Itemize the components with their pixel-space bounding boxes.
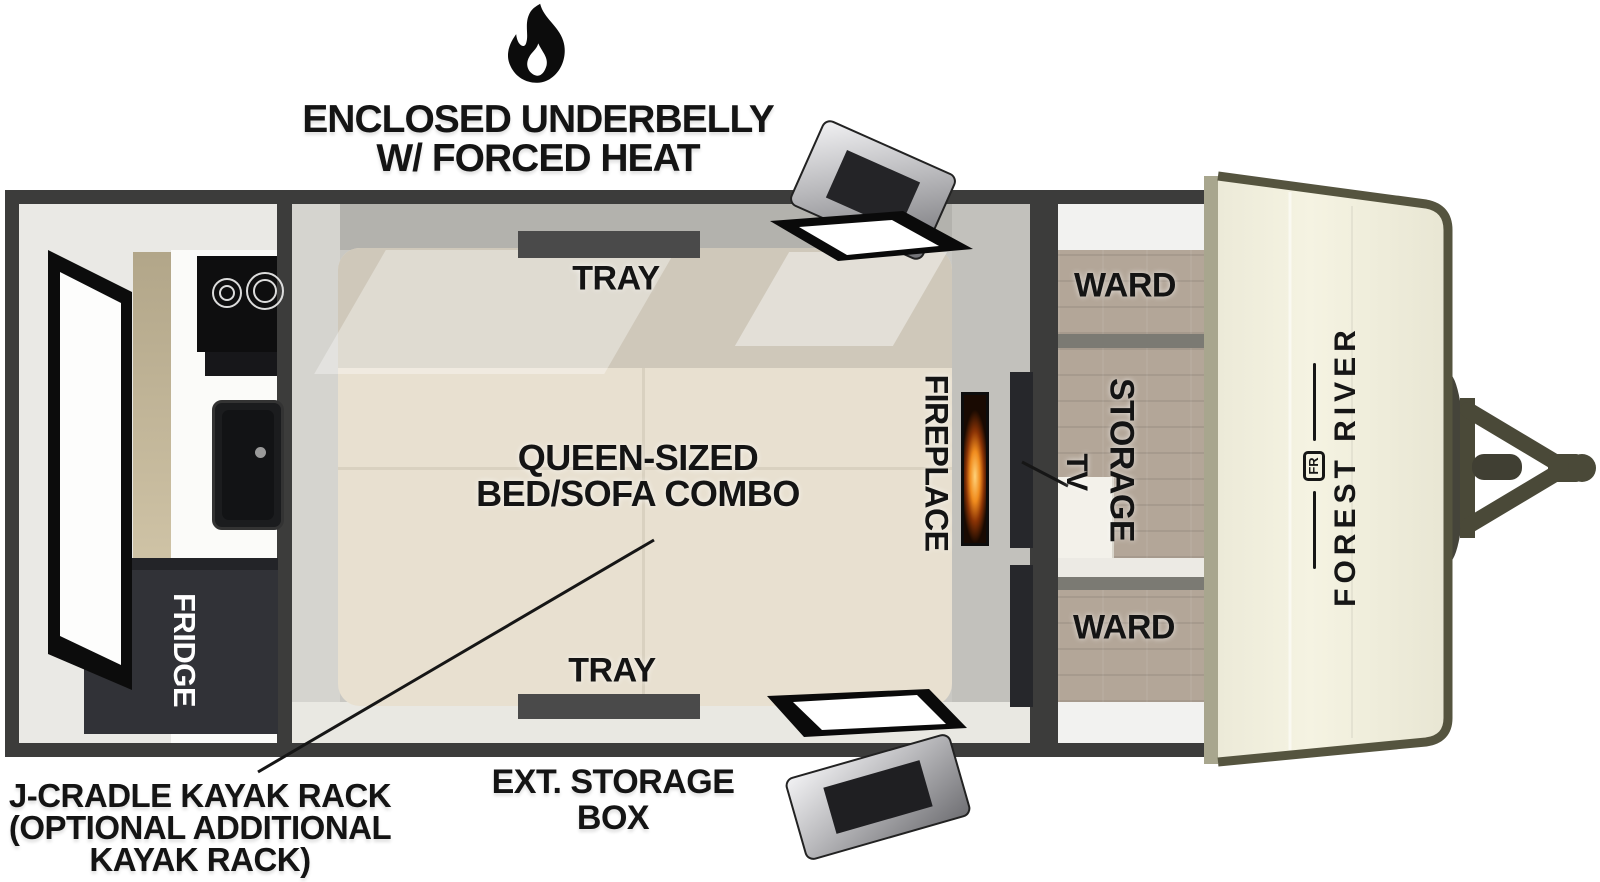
- tray-top: [518, 231, 700, 258]
- brand-block: FR FOREST RIVER: [1303, 266, 1363, 666]
- fireplace-label: FIREPLACE: [918, 375, 955, 552]
- fireplace-flame: [964, 395, 986, 543]
- tv-panel: [1010, 372, 1033, 548]
- brand-logo-row: FR: [1303, 363, 1325, 568]
- underbelly-heat-note-line1: ENCLOSED UNDERBELLY: [302, 100, 773, 139]
- bed-label-line2: BED/SOFA COMBO: [476, 473, 800, 515]
- underbelly-heat-note: ENCLOSED UNDERBELLY W/ FORCED HEAT: [302, 0, 773, 178]
- floorplan-canvas: ENCLOSED UNDERBELLY W/ FORCED HEAT: [0, 0, 1600, 882]
- storage-shelf: [1058, 558, 1208, 577]
- kitchen-counter: [133, 252, 171, 564]
- brand-divider-line: [1313, 491, 1316, 569]
- tray-top-label: TRAY: [572, 260, 659, 299]
- fridge-label: FRIDGE: [166, 593, 202, 707]
- sink-drain: [255, 447, 266, 458]
- cooktop-burner-right: [246, 272, 284, 310]
- main-room-left-wall-face: [292, 204, 340, 743]
- tray-bottom-label: TRAY: [568, 652, 655, 691]
- compartment-divider-lower: [1058, 577, 1208, 590]
- forest-river-logo-icon: FR: [1303, 451, 1325, 480]
- sink-basin: [222, 410, 274, 520]
- ext-storage-note-line2: BOX: [492, 800, 735, 836]
- ward-top-label: WARD: [1074, 267, 1176, 306]
- compartment-divider-upper: [1058, 334, 1208, 348]
- kayak-rack-note-line1: J-CRADLE KAYAK RACK: [9, 780, 391, 812]
- media-cabinet-panel: [1010, 565, 1033, 707]
- cooktop-control-panel: [205, 352, 277, 376]
- ext-storage-note: EXT. STORAGE BOX: [492, 764, 735, 836]
- cooktop-burner-left: [212, 278, 242, 308]
- ward-bottom-label: WARD: [1073, 609, 1175, 648]
- a-frame-hitch-icon: [1431, 373, 1596, 563]
- storage-label: STORAGE: [1102, 378, 1141, 542]
- kayak-rack-note: J-CRADLE KAYAK RACK (OPTIONAL ADDITIONAL…: [9, 780, 391, 876]
- underbelly-heat-note-line2: W/ FORCED HEAT: [302, 139, 773, 178]
- brand-divider-line: [1313, 363, 1316, 441]
- flame-icon: [503, 2, 573, 94]
- fridge-top-edge: [84, 558, 278, 570]
- tray-bottom: [518, 694, 700, 719]
- ext-storage-note-line1: EXT. STORAGE: [492, 764, 735, 800]
- fireplace: [961, 392, 989, 546]
- kayak-rack-note-line2: (OPTIONAL ADDITIONAL: [9, 812, 391, 844]
- kayak-rack-note-line3: KAYAK RACK): [9, 844, 391, 876]
- kitchen-sink: [212, 400, 284, 530]
- tv-label: TV: [1059, 453, 1093, 490]
- brand-name: FOREST RIVER: [1329, 325, 1363, 607]
